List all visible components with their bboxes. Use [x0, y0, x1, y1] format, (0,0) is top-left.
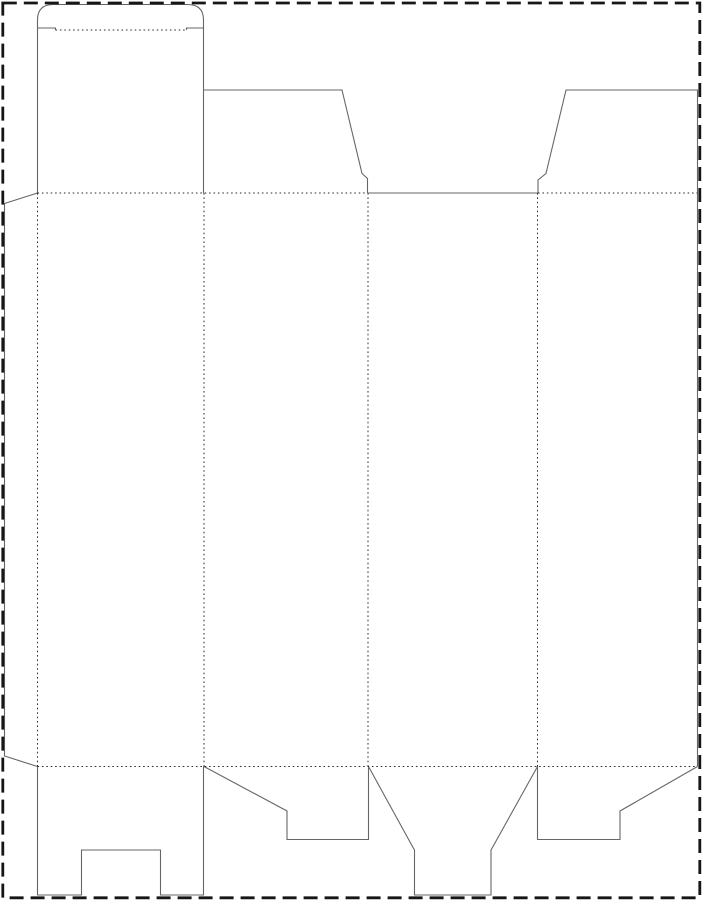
- top-dust-flap-left: [204, 90, 368, 193]
- cut-lines: [5, 5, 698, 896]
- dieline-page: [0, 0, 703, 900]
- page-cut-border: [3, 3, 700, 898]
- bottom-tongue-flap: [369, 767, 538, 896]
- top-dust-flap-right-and-side: [538, 90, 698, 767]
- bottom-lock-flap-notched: [38, 767, 204, 896]
- glue-flap-outline: [5, 193, 38, 767]
- top-panel-tuck-outline: [38, 5, 204, 194]
- carton-dieline-diagram: [0, 0, 703, 900]
- tuck-slit-left: [38, 28, 56, 30]
- fold-lines: [38, 30, 698, 767]
- bottom-dust-flap-right: [538, 767, 698, 840]
- tuck-slit-right: [187, 28, 204, 30]
- bottom-dust-flap-left: [204, 767, 369, 840]
